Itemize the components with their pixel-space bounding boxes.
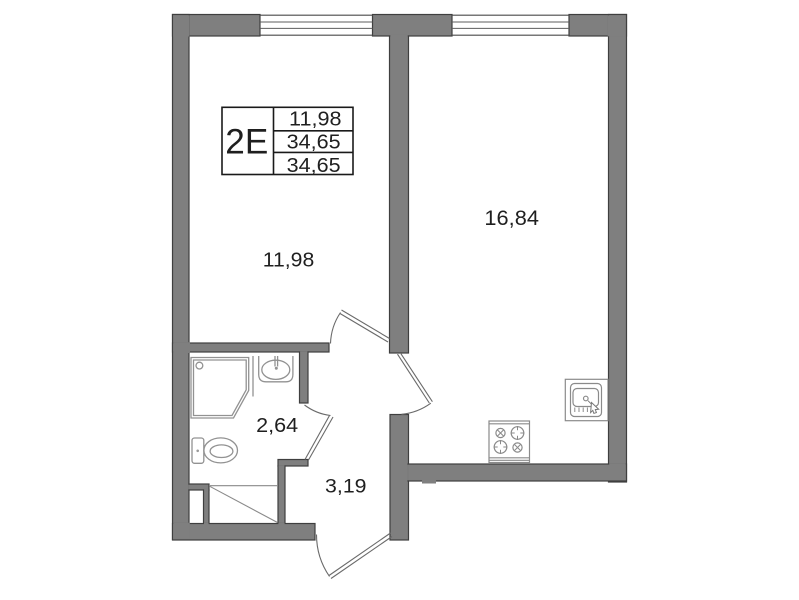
svg-text:16,84: 16,84 <box>484 206 539 230</box>
svg-text:34,65: 34,65 <box>287 131 341 153</box>
svg-text:2,64: 2,64 <box>256 415 298 437</box>
svg-text:11,98: 11,98 <box>289 108 342 130</box>
svg-text:3,19: 3,19 <box>325 476 367 498</box>
svg-text:2E: 2E <box>225 123 268 162</box>
svg-text:11,98: 11,98 <box>263 249 315 271</box>
svg-text:34,65: 34,65 <box>287 155 341 177</box>
